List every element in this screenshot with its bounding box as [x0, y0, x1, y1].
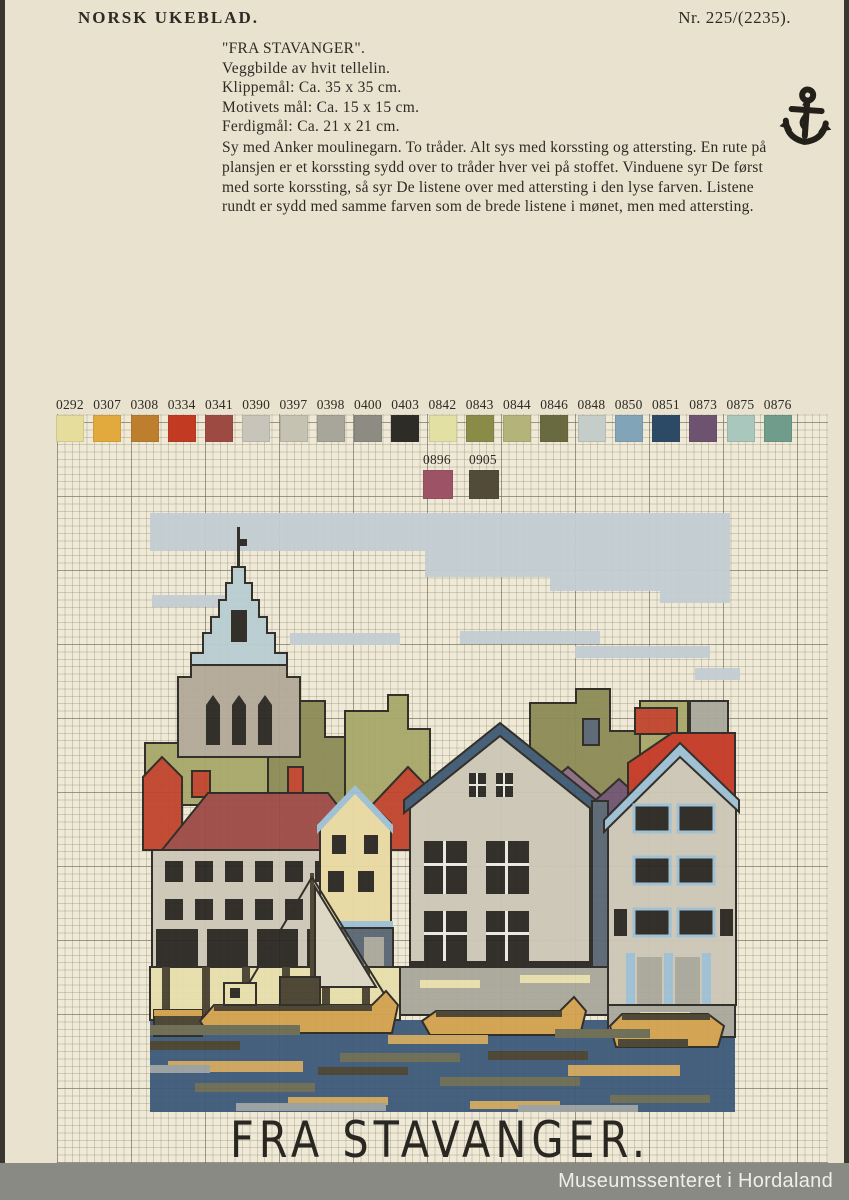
watermark-band: Museumssenteret i Hordaland: [0, 1163, 849, 1200]
yarn-color-sample: [429, 415, 457, 442]
yarn-swatch-0850: 0850: [615, 397, 652, 442]
spec-motif-size: Motivets mål: Ca. 15 x 15 cm.: [222, 98, 419, 118]
yarn-code: 0876: [764, 397, 801, 413]
watermark-text: Museumssenteret i Hordaland: [558, 1170, 833, 1193]
magazine-page: { "page": { "masthead": "NORSK UKEBLAD."…: [0, 0, 849, 1200]
yarn-color-sample: [280, 415, 308, 442]
yarn-code: 0397: [280, 397, 317, 413]
yarn-color-sample: [540, 415, 568, 442]
yarn-color-sample: [242, 415, 270, 442]
yarn-code: 0307: [93, 397, 130, 413]
yarn-palette-row-2: 08960905: [423, 452, 515, 499]
yarn-swatch-0403: 0403: [391, 397, 428, 442]
yarn-swatch-0876: 0876: [764, 397, 801, 442]
motif-caption: FRA STAVANGER.: [230, 1111, 650, 1165]
yarn-swatch-0341: 0341: [205, 397, 242, 442]
yarn-color-sample: [423, 470, 453, 499]
yarn-swatch-0873: 0873: [689, 397, 726, 442]
stitching-instructions: Sy med Anker moulinegarn. To tråder. Alt…: [222, 138, 770, 217]
yarn-code: 0905: [469, 452, 515, 468]
pattern-title-block: "FRA STAVANGER". Veggbilde av hvit telle…: [222, 39, 419, 137]
yarn-swatch-0398: 0398: [317, 397, 354, 442]
spec-finished-size: Ferdigmål: Ca. 21 x 21 cm.: [222, 117, 419, 137]
yarn-swatch-0843: 0843: [466, 397, 503, 442]
yarn-swatch-0397: 0397: [280, 397, 317, 442]
yarn-swatch-0842: 0842: [429, 397, 466, 442]
yarn-color-sample: [689, 415, 717, 442]
yarn-code: 0875: [727, 397, 764, 413]
scan-edge-left: [0, 0, 5, 1200]
pattern-title: "FRA STAVANGER".: [222, 39, 419, 59]
pattern-subtitle: Veggbilde av hvit tellelin.: [222, 59, 419, 79]
yarn-color-sample: [93, 415, 121, 442]
yarn-color-sample: [168, 415, 196, 442]
yarn-color-sample: [727, 415, 755, 442]
yarn-swatch-0848: 0848: [578, 397, 615, 442]
yarn-color-sample: [615, 415, 643, 442]
yarn-code: 0398: [317, 397, 354, 413]
yarn-code: 0390: [242, 397, 279, 413]
yarn-code: 0292: [56, 397, 93, 413]
yarn-swatch-0307: 0307: [93, 397, 130, 442]
yarn-code: 0873: [689, 397, 726, 413]
issue-number: Nr. 225/(2235).: [678, 8, 791, 28]
yarn-swatch-0292: 0292: [56, 397, 93, 442]
yarn-code: 0334: [168, 397, 205, 413]
yarn-swatch-0390: 0390: [242, 397, 279, 442]
anchor-icon: [776, 84, 836, 154]
yarn-color-sample: [652, 415, 680, 442]
yarn-code: 0846: [540, 397, 577, 413]
stavanger-harbor-motif: FRA STAVANGER.: [140, 505, 740, 1165]
yarn-swatch-0844: 0844: [503, 397, 540, 442]
yarn-code: 0848: [578, 397, 615, 413]
yarn-swatch-0875: 0875: [727, 397, 764, 442]
yarn-color-sample: [131, 415, 159, 442]
yarn-swatch-0400: 0400: [354, 397, 391, 442]
yarn-swatch-0851: 0851: [652, 397, 689, 442]
yarn-color-sample: [503, 415, 531, 442]
magazine-masthead: NORSK UKEBLAD.: [78, 8, 259, 28]
yarn-code: 0844: [503, 397, 540, 413]
yarn-color-sample: [391, 415, 419, 442]
yarn-code: 0896: [423, 452, 469, 468]
yarn-code: 0341: [205, 397, 242, 413]
yarn-code: 0400: [354, 397, 391, 413]
yarn-swatch-0846: 0846: [540, 397, 577, 442]
spec-clip-size: Klippemål: Ca. 35 x 35 cm.: [222, 78, 419, 98]
scan-edge-right: [844, 0, 849, 1200]
yarn-swatch-0896: 0896: [423, 452, 469, 499]
yarn-code: 0843: [466, 397, 503, 413]
yarn-color-sample: [317, 415, 345, 442]
yarn-code: 0851: [652, 397, 689, 413]
yarn-code: 0850: [615, 397, 652, 413]
yarn-code: 0308: [131, 397, 168, 413]
yarn-color-sample: [205, 415, 233, 442]
yarn-color-sample: [469, 470, 499, 499]
yarn-palette-row-1: 0292030703080334034103900397039804000403…: [56, 397, 806, 442]
yarn-code: 0842: [429, 397, 466, 413]
yarn-swatch-0905: 0905: [469, 452, 515, 499]
yarn-color-sample: [578, 415, 606, 442]
yarn-swatch-0334: 0334: [168, 397, 205, 442]
yarn-code: 0403: [391, 397, 428, 413]
yarn-color-sample: [354, 415, 382, 442]
yarn-color-sample: [56, 415, 84, 442]
yarn-color-sample: [466, 415, 494, 442]
yarn-color-sample: [764, 415, 792, 442]
yarn-swatch-0308: 0308: [131, 397, 168, 442]
